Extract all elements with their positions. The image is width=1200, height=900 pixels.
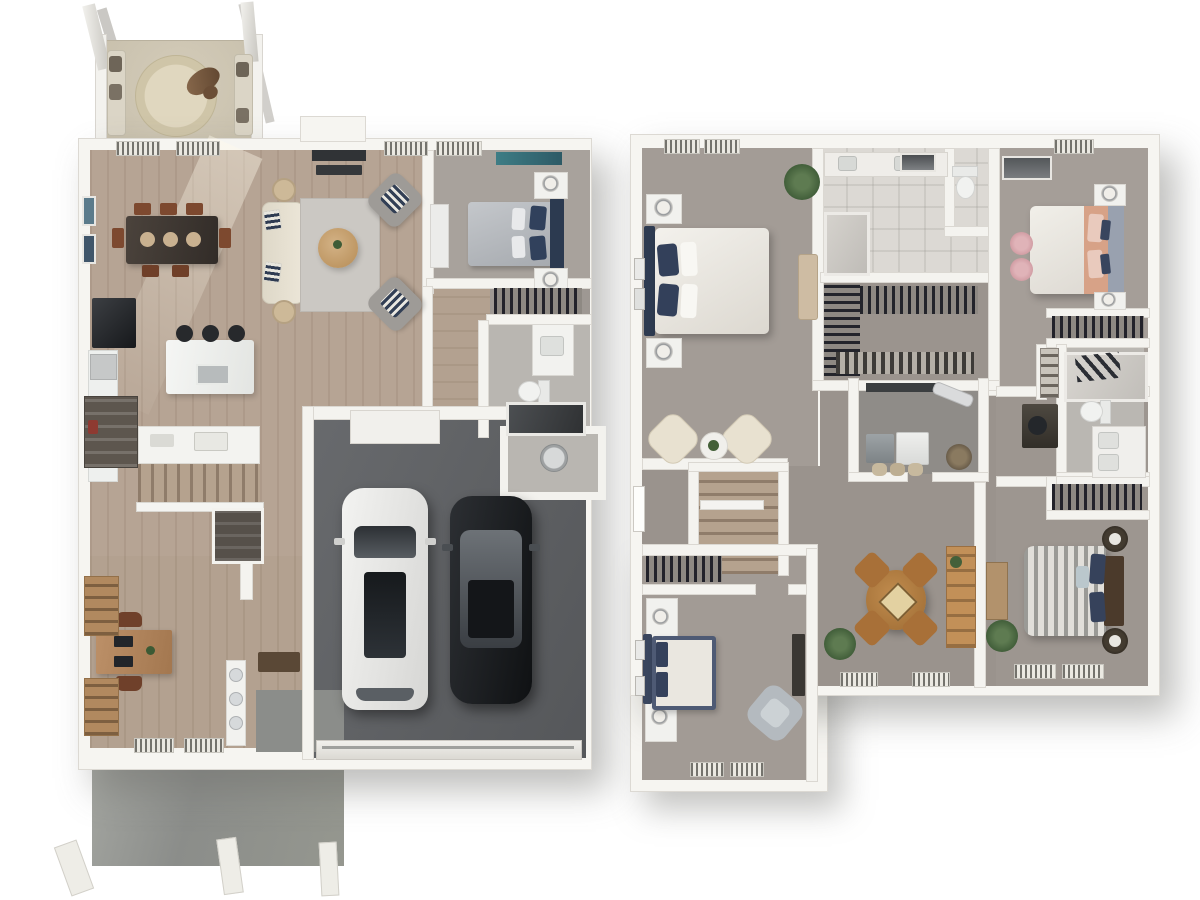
bedroom4-lamp-b: [651, 708, 668, 725]
master-closet-clothes-north: [860, 286, 978, 314]
wall-closet3-south: [1046, 510, 1150, 520]
laundry-basket-1: [872, 463, 887, 476]
bedroom4-pillow-2: [656, 672, 668, 697]
hallbath-toilet-bowl: [1080, 401, 1103, 422]
bedroom3-dresser: [986, 562, 1008, 620]
master-pillow-1: [657, 243, 680, 277]
closet4-clothes: [646, 556, 722, 582]
wall-stair-north: [688, 462, 789, 472]
second-floor-plan: [0, 0, 1200, 900]
washer: [866, 434, 894, 463]
bedroom3-lamp-a: [1109, 533, 1121, 545]
wall-laundry-west: [848, 378, 859, 482]
master-sink-1: [838, 156, 857, 171]
bedroom4-art-1: [635, 640, 645, 660]
wall-laundry-south-b: [932, 472, 989, 482]
loft-window-blind-2: [912, 672, 950, 687]
bedroom4-window-blind-2: [730, 762, 764, 777]
dryer: [896, 432, 929, 465]
master-lamp-b: [654, 342, 673, 361]
master-toilet-bowl: [956, 176, 975, 199]
bedroom4-art-2: [635, 676, 645, 696]
laundry-basket-2: [890, 463, 905, 476]
wall-wing-north: [642, 544, 818, 556]
bedroom2-lamp-a: [1101, 185, 1118, 202]
master-pillow-2: [657, 283, 680, 317]
wall-bedroom2-west: [988, 148, 1000, 396]
laundry-basket-3: [908, 463, 923, 476]
master-lamp-a: [654, 198, 673, 217]
bedroom4-lamp-a: [652, 608, 669, 625]
master-bench: [798, 254, 818, 320]
wall-laundry-east: [978, 378, 989, 482]
bedroom3-window-blind-2: [1062, 664, 1104, 679]
bedroom3-pillow-3: [1076, 566, 1089, 588]
bedroom4-window-blind-1: [690, 762, 724, 777]
master-shower: [824, 212, 870, 276]
floor-plan-scene: [0, 0, 1200, 900]
bedroom3-headboard: [1104, 556, 1124, 626]
bedroom2-pouf-2: [1010, 258, 1033, 281]
master-plant: [784, 164, 820, 200]
loft-plant: [824, 628, 856, 660]
hallbath-sink-2: [1098, 454, 1119, 471]
linen-shelves: [1040, 348, 1059, 398]
loft-window-blind-1: [840, 672, 878, 687]
bedroom2-lamp-b: [1101, 292, 1116, 307]
f2-window-blind-1: [664, 139, 700, 154]
bedroom3-lamp-b: [1109, 635, 1121, 647]
bath-skylight: [900, 153, 936, 172]
f2-window-blind-3: [1054, 139, 1094, 154]
laundry-shelf: [866, 383, 940, 392]
bedroom4-pillow-1: [656, 642, 668, 667]
master-art-1: [634, 258, 645, 280]
bedroom2-pillow-4: [1100, 254, 1111, 275]
bedroom3-window-blind-1: [1014, 664, 1056, 679]
f2-window-blind-2: [704, 139, 740, 154]
master-pillow-3: [680, 242, 698, 277]
hall-desk-chair: [1028, 416, 1047, 435]
loft-bookcase-plant: [950, 556, 962, 568]
hall-window-west: [633, 486, 645, 532]
hallbath-towel-rack: [1075, 352, 1121, 382]
stair-railing-2: [700, 500, 764, 510]
bedroom3-pillow-1: [1089, 554, 1106, 585]
bedroom2-headboard: [1108, 202, 1124, 298]
bedroom4-dresser: [792, 634, 805, 696]
wall-closet4-south-a: [642, 584, 756, 595]
master-headboard: [644, 226, 655, 336]
bedroom3-pillow-2: [1089, 592, 1106, 623]
bedroom3-plant: [986, 620, 1018, 652]
sitting-table-plant: [708, 440, 719, 451]
hallbath-sink-1: [1098, 432, 1119, 449]
master-art-2: [634, 288, 645, 310]
master-pillow-4: [680, 284, 698, 319]
attic-access-panel: [1002, 156, 1052, 180]
wall-wing-east: [806, 548, 818, 782]
closet3-clothes: [1052, 484, 1142, 510]
laundry-hamper: [946, 444, 972, 470]
closet2-clothes: [1052, 316, 1144, 338]
bedroom2-pouf-1: [1010, 232, 1033, 255]
wall-stair-east: [778, 462, 789, 576]
master-closet-shoes-south: [836, 352, 974, 374]
